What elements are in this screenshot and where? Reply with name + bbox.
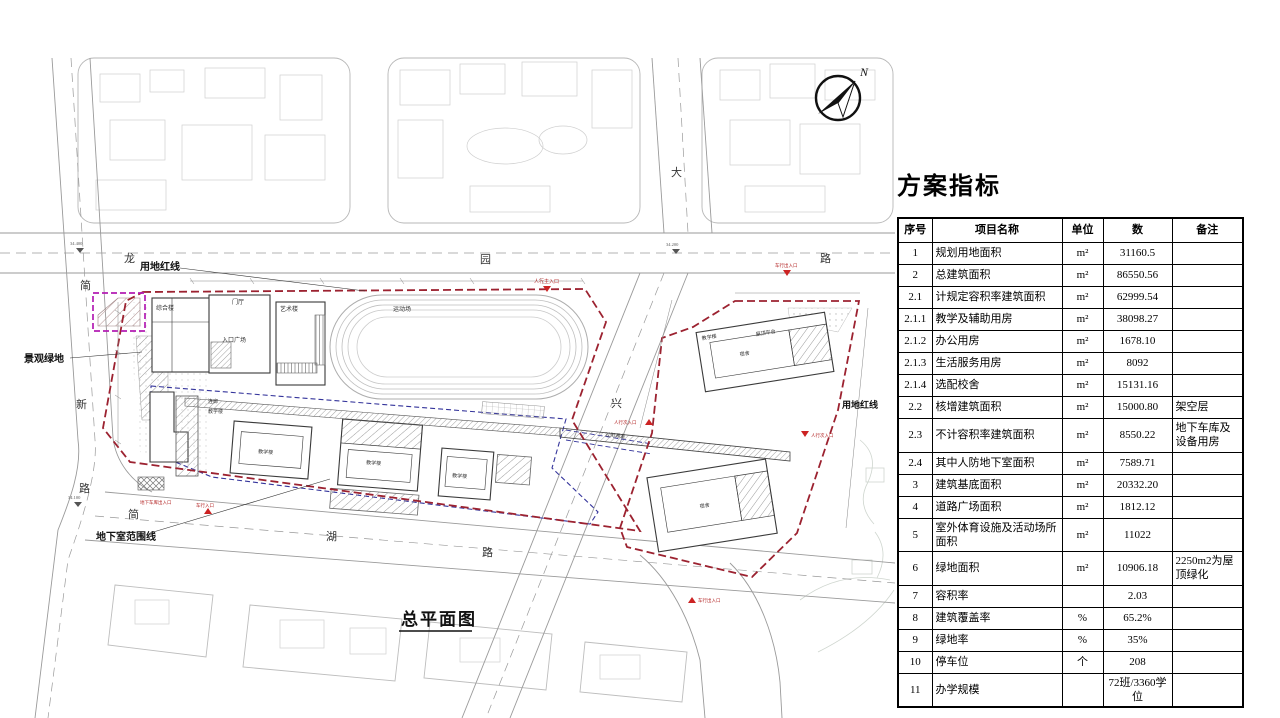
col-remark — [1172, 585, 1243, 607]
col-remark — [1172, 243, 1243, 265]
col-unit: % — [1062, 629, 1103, 651]
col-remark: 架空层 — [1172, 397, 1243, 419]
table-header-row: 序号 项目名称 单位 数 备注 — [898, 218, 1243, 243]
table-body: 1规划用地面积m²31160.52总建筑面积m²86550.562.1计规定容积… — [898, 243, 1243, 708]
col-unit: m² — [1062, 309, 1103, 331]
col-remark — [1172, 375, 1243, 397]
col-remark — [1172, 309, 1243, 331]
col-no: 7 — [898, 585, 932, 607]
elevation-3: 34.100 — [68, 495, 81, 500]
col-value: 31160.5 — [1103, 243, 1172, 265]
col-name: 计规定容积率建筑面积 — [932, 287, 1062, 309]
col-value: 8092 — [1103, 353, 1172, 375]
col-value: 8550.22 — [1103, 419, 1172, 453]
art-building-label: 艺术楼 — [280, 305, 298, 313]
header-value: 数 — [1103, 218, 1172, 243]
col-remark — [1172, 629, 1243, 651]
col-remark: 地下车库及设备用房 — [1172, 419, 1243, 453]
corridor-label: 连廊 — [208, 398, 218, 405]
col-remark — [1172, 452, 1243, 474]
col-no: 2.1 — [898, 287, 932, 309]
col-remark: 2250m2为屋顶绿化 — [1172, 552, 1243, 586]
col-no: 2.4 — [898, 452, 932, 474]
header-no: 序号 — [898, 218, 932, 243]
red-line-label-right: 用地红线 — [841, 399, 878, 410]
col-value: 62999.54 — [1103, 287, 1172, 309]
col-no: 6 — [898, 552, 932, 586]
road-bottom-char-1: 湖 — [326, 530, 337, 543]
road-bottom-char-2: 路 — [482, 546, 493, 559]
col-value: 1812.12 — [1103, 496, 1172, 518]
green-space-label: 景观绿地 — [24, 352, 64, 365]
col-name: 办学规模 — [932, 673, 1062, 707]
col-no: 2.1.4 — [898, 375, 932, 397]
col-no: 2.1.1 — [898, 309, 932, 331]
road-left-char-1: 新 — [76, 397, 87, 411]
col-name: 核增建筑面积 — [932, 397, 1062, 419]
col-no: 2 — [898, 265, 932, 287]
col-no: 10 — [898, 651, 932, 673]
road-left-char-0: 简 — [80, 278, 91, 292]
road-left-char-2: 路 — [79, 482, 90, 495]
col-value: 11022 — [1103, 518, 1172, 552]
col-no: 4 — [898, 496, 932, 518]
basement-line-label: 地下室范围线 — [96, 530, 156, 543]
col-unit: m² — [1062, 353, 1103, 375]
col-unit: 个 — [1062, 651, 1103, 673]
col-no: 8 — [898, 607, 932, 629]
col-unit: m² — [1062, 474, 1103, 496]
col-value: 208 — [1103, 651, 1172, 673]
table-row: 5室外体育设施及活动场所面积m²11022 — [898, 518, 1243, 552]
header-name: 项目名称 — [932, 218, 1062, 243]
col-value: 35% — [1103, 629, 1172, 651]
col-unit: m² — [1062, 397, 1103, 419]
site-plan-drawing: N 用地红线 景观绿地 地下室范围线 用地红线 综合楼 门厅 入口广场 艺术楼 … — [0, 0, 895, 718]
running-track — [330, 295, 588, 399]
table-row: 2.1.2办公用房m²1678.10 — [898, 331, 1243, 353]
col-remark — [1172, 496, 1243, 518]
table-row: 11办学规模72班/3360学位 — [898, 673, 1243, 707]
col-name: 办公用房 — [932, 331, 1062, 353]
col-name: 停车位 — [932, 651, 1062, 673]
drawing-title: 总平面图 — [399, 609, 477, 631]
col-value: 15000.80 — [1103, 397, 1172, 419]
col-name: 总建筑面积 — [932, 265, 1062, 287]
col-remark — [1172, 331, 1243, 353]
col-value: 2.03 — [1103, 585, 1172, 607]
context-north — [78, 58, 893, 223]
elevation-2: 34.200 — [666, 242, 679, 247]
indicator-table: 序号 项目名称 单位 数 备注 1规划用地面积m²31160.52总建筑面积m²… — [897, 217, 1244, 708]
col-value: 20332.20 — [1103, 474, 1172, 496]
red-line-label-top: 用地红线 — [139, 260, 180, 273]
col-remark — [1172, 518, 1243, 552]
col-unit: m² — [1062, 331, 1103, 353]
header-remark: 备注 — [1172, 218, 1243, 243]
col-no: 9 — [898, 629, 932, 651]
table-row: 9绿地率%35% — [898, 629, 1243, 651]
road-bottom-char-0: 简 — [128, 507, 139, 521]
teaching-label-west: 教学楼 — [208, 408, 223, 415]
garage-entrance-label: 地下车库出入口 — [140, 499, 172, 506]
col-name: 生活服务用房 — [932, 353, 1062, 375]
side-entrance-label-1: 人行次入口 — [614, 419, 637, 426]
col-remark — [1172, 474, 1243, 496]
col-name: 选配校舍 — [932, 375, 1062, 397]
indicator-panel: 方案指标 序号 项目名称 单位 数 备注 1规划用地面积m²31160.52总建… — [897, 166, 1259, 708]
elevation-1: 34.400 — [70, 241, 83, 246]
road-middle-char-0: 大 — [671, 165, 682, 179]
buildings-right-parcel — [647, 308, 852, 552]
col-name: 教学及辅助用房 — [932, 309, 1062, 331]
col-unit: m² — [1062, 552, 1103, 586]
col-name: 绿地率 — [932, 629, 1062, 651]
header-unit: 单位 — [1062, 218, 1103, 243]
col-remark — [1172, 287, 1243, 309]
side-entrance-label-2: 人行次入口 — [811, 432, 834, 439]
col-unit — [1062, 585, 1103, 607]
col-no: 5 — [898, 518, 932, 552]
col-unit: m² — [1062, 452, 1103, 474]
table-row: 2.1.1教学及辅助用房m²38098.27 — [898, 309, 1243, 331]
entry-plaza-label: 入口广场 — [222, 336, 246, 344]
sports-field-label: 运动场 — [393, 305, 411, 313]
col-remark — [1172, 265, 1243, 287]
col-unit: % — [1062, 607, 1103, 629]
col-name: 绿地面积 — [932, 552, 1062, 586]
vehicle-exit-label-bottom: 车行出入口 — [698, 597, 721, 604]
road-middle-char-1: 兴 — [611, 397, 622, 410]
col-value: 7589.71 — [1103, 452, 1172, 474]
col-name: 道路广场面积 — [932, 496, 1062, 518]
table-row: 2.1.4选配校舍m²15131.16 — [898, 375, 1243, 397]
col-unit: m² — [1062, 496, 1103, 518]
north-arrow: N — [816, 65, 869, 120]
col-value: 1678.10 — [1103, 331, 1172, 353]
col-unit: m² — [1062, 375, 1103, 397]
col-no: 3 — [898, 474, 932, 496]
col-value: 15131.16 — [1103, 375, 1172, 397]
table-row: 1规划用地面积m²31160.5 — [898, 243, 1243, 265]
col-value: 10906.18 — [1103, 552, 1172, 586]
vehicle-entrance-label: 车行入口 — [196, 502, 214, 509]
col-no: 1 — [898, 243, 932, 265]
road-left — [35, 58, 152, 718]
col-no: 2.3 — [898, 419, 932, 453]
complex-label: 综合楼 — [156, 304, 174, 312]
col-remark — [1172, 651, 1243, 673]
col-unit: m² — [1062, 419, 1103, 453]
col-name: 其中人防地下室面积 — [932, 452, 1062, 474]
road-top-char-0: 龙 — [124, 252, 135, 265]
col-value: 72班/3360学位 — [1103, 673, 1172, 707]
main-entrance-label: 人行主入口 — [534, 278, 559, 285]
col-no: 2.2 — [898, 397, 932, 419]
col-name: 室外体育设施及活动场所面积 — [932, 518, 1062, 552]
table-row: 10停车位个208 — [898, 651, 1243, 673]
north-label: N — [859, 65, 869, 79]
col-no: 2.1.2 — [898, 331, 932, 353]
garage-ramp — [138, 477, 164, 490]
col-value: 86550.56 — [1103, 265, 1172, 287]
col-value: 38098.27 — [1103, 309, 1172, 331]
col-name: 不计容积率建筑面积 — [932, 419, 1062, 453]
entry-hall-label: 门厅 — [232, 298, 244, 306]
col-unit: m² — [1062, 243, 1103, 265]
col-no: 2.1.3 — [898, 353, 932, 375]
plan-title: 总平面图 — [401, 609, 477, 629]
table-row: 2.4其中人防地下室面积m²7589.71 — [898, 452, 1243, 474]
col-name: 建筑基底面积 — [932, 474, 1062, 496]
col-value: 65.2% — [1103, 607, 1172, 629]
table-row: 2.1.3生活服务用房m²8092 — [898, 353, 1243, 375]
road-top-char-2: 路 — [820, 252, 831, 265]
road-middle — [462, 58, 712, 718]
col-remark — [1172, 607, 1243, 629]
table-row: 8建筑覆盖率%65.2% — [898, 607, 1243, 629]
col-unit: m² — [1062, 265, 1103, 287]
table-row: 2.2核增建筑面积m²15000.80架空层 — [898, 397, 1243, 419]
table-row: 4道路广场面积m²1812.12 — [898, 496, 1243, 518]
table-row: 2.3不计容积率建筑面积m²8550.22地下车库及设备用房 — [898, 419, 1243, 453]
col-no: 11 — [898, 673, 932, 707]
col-name: 容积率 — [932, 585, 1062, 607]
road-top-char-1: 园 — [480, 253, 491, 266]
col-unit: m² — [1062, 287, 1103, 309]
vehicle-exit-label-top: 车行出入口 — [775, 262, 798, 269]
table-row: 2总建筑面积m²86550.56 — [898, 265, 1243, 287]
col-remark — [1172, 353, 1243, 375]
col-remark — [1172, 673, 1243, 707]
table-row: 3建筑基底面积m²20332.20 — [898, 474, 1243, 496]
col-name: 建筑覆盖率 — [932, 607, 1062, 629]
panel-title: 方案指标 — [897, 166, 1259, 201]
table-row: 6绿地面积m²10906.182250m2为屋顶绿化 — [898, 552, 1243, 586]
col-name: 规划用地面积 — [932, 243, 1062, 265]
col-unit — [1062, 673, 1103, 707]
col-unit: m² — [1062, 518, 1103, 552]
table-row: 7容积率2.03 — [898, 585, 1243, 607]
table-row: 2.1计规定容积率建筑面积m²62999.54 — [898, 287, 1243, 309]
